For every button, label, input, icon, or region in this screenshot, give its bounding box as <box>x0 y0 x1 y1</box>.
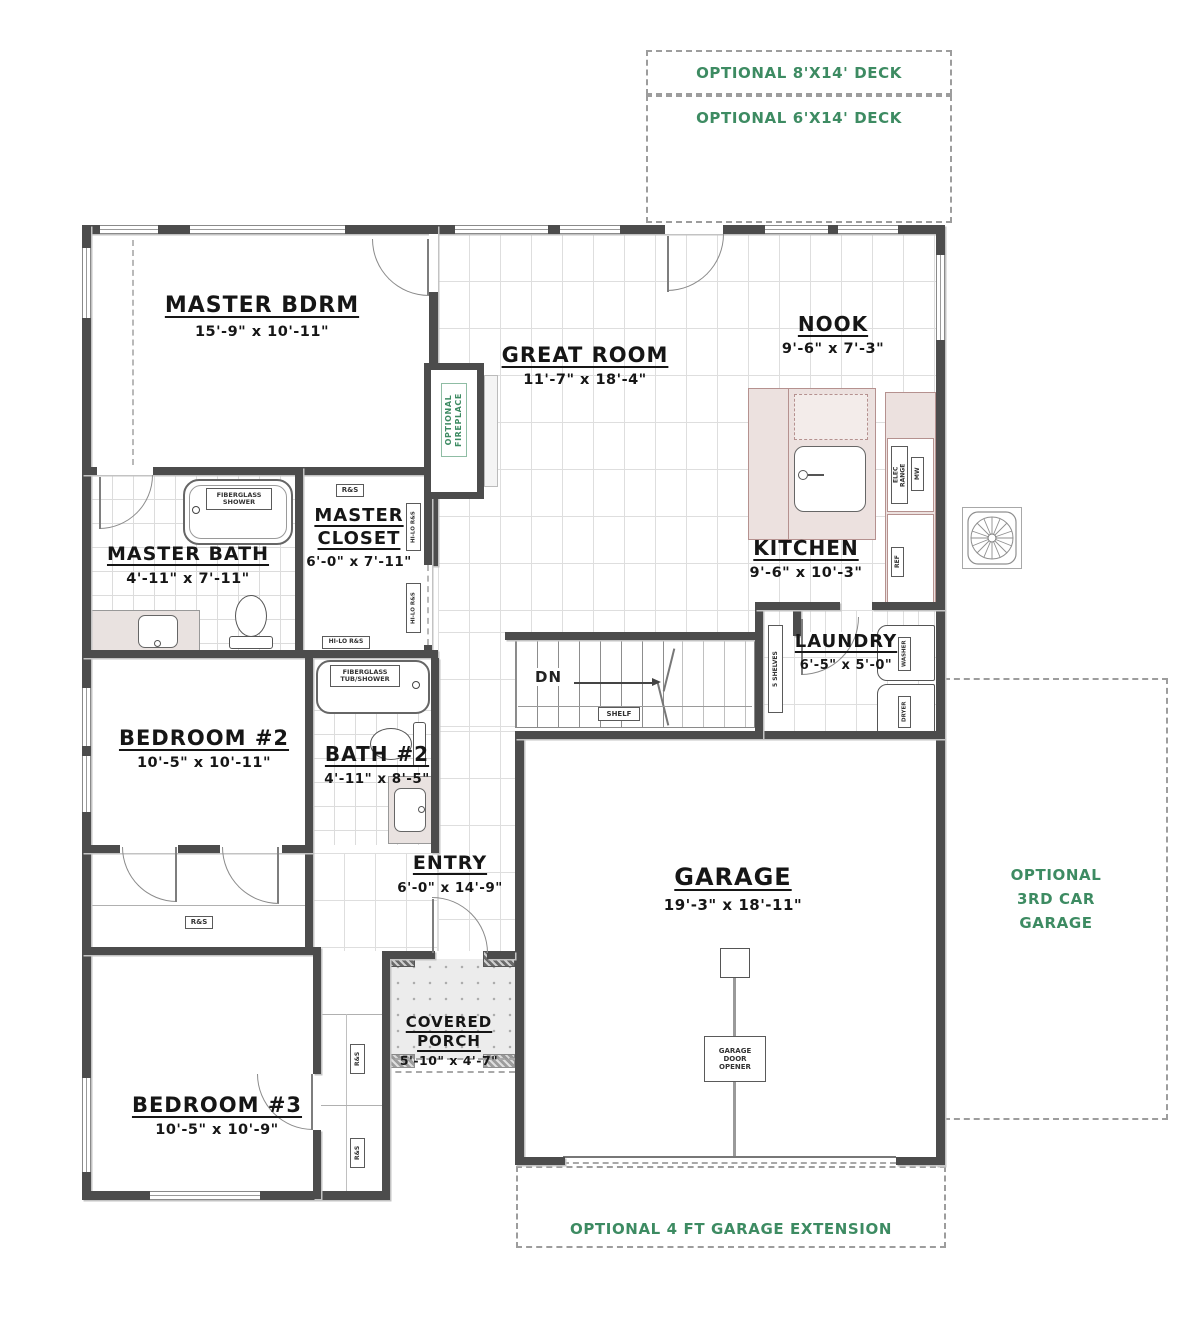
room-dims: 6'-0" x 14'-9" <box>330 880 570 896</box>
shelf-label: SHELF <box>598 707 640 721</box>
optional-deck-8x14-label: OPTIONAL 8'X14' DECK <box>696 64 902 82</box>
faucet-spout <box>808 474 824 476</box>
window <box>150 1191 260 1200</box>
stairs-direction-arrow <box>574 682 654 684</box>
window <box>190 225 345 234</box>
wall <box>82 650 438 658</box>
room-dims: 4'-11" x 7'-11" <box>68 571 308 587</box>
garage-door-opener-unit <box>720 948 750 978</box>
door-swing <box>122 847 177 902</box>
wall <box>515 731 945 739</box>
room-name: BATH #2 <box>257 742 497 767</box>
door-leaf <box>277 847 279 903</box>
microwave-label: MW <box>911 457 924 491</box>
room-name: BEDROOM #3 <box>97 1092 337 1118</box>
optional-deck-8x14-area: OPTIONAL 8'X14' DECK <box>646 50 952 95</box>
floor-plan: OPTIONAL 8'X14' DECK OPTIONAL 6'X14' DEC… <box>0 0 1200 1317</box>
door-swing <box>222 847 279 904</box>
rod-shelf-label: R&S <box>185 916 213 929</box>
wall <box>515 739 524 1165</box>
optional-third-car-garage-area: OPTIONAL 3RD CAR GARAGE <box>944 678 1168 1120</box>
garage-door-dashed <box>563 1162 896 1164</box>
room-dims: 5'-10" x 4'-7" <box>329 1053 569 1068</box>
room-label-bedroom3: BEDROOM #3 10'-5" x 10'-9" <box>97 1092 337 1138</box>
garage-door-opener-label: GARAGE DOOR OPENER <box>704 1036 766 1082</box>
wall <box>872 602 945 610</box>
door-leaf <box>432 899 434 953</box>
window <box>765 225 828 234</box>
room-dims: 15'-9" x 10'-11" <box>142 324 382 340</box>
hilo-rod-shelf-label: HI-LO R&S <box>406 583 421 633</box>
room-name: GREAT ROOM <box>465 342 705 368</box>
rod-shelf-label: R&S <box>350 1138 365 1168</box>
room-dims: 19'-3" x 18'-11" <box>613 896 853 914</box>
wall <box>505 632 763 640</box>
wall <box>382 951 390 1200</box>
optional-fireplace-label: OPTIONAL FIREPLACE <box>444 393 463 447</box>
rod-shelf-label: R&S <box>336 484 364 497</box>
room-label-entry: ENTRY 6'-0" x 14'-9" <box>330 852 570 896</box>
room-label-master-closet: MASTER CLOSET 6'-0" x 7'-11" <box>239 505 479 570</box>
room-dims: 6'-5" x 5'-0" <box>726 658 966 673</box>
room-label-garage: GARAGE 19'-3" x 18'-11" <box>613 862 853 914</box>
optional-garage-extension-area: OPTIONAL 4 FT GARAGE EXTENSION <box>516 1166 946 1248</box>
room-label-laundry: LAUNDRY 6'-5" x 5'-0" <box>726 631 966 673</box>
ceiling-break-dashed-line <box>132 240 134 465</box>
optional-deck-6x14-area: OPTIONAL 6'X14' DECK <box>646 95 952 223</box>
optional-fireplace-label-box: OPTIONAL FIREPLACE <box>441 383 467 457</box>
closet-shelf-line <box>90 905 306 906</box>
room-label-nook: NOOK 9'-6" x 7'-3" <box>713 312 953 357</box>
room-dims: 10'-5" x 10'-9" <box>97 1122 337 1138</box>
optional-garage-extension-label: OPTIONAL 4 FT GARAGE EXTENSION <box>570 1220 892 1238</box>
window <box>455 225 548 234</box>
door-leaf <box>667 236 669 292</box>
optional-deck-6x14-label: OPTIONAL 6'X14' DECK <box>696 109 902 127</box>
sink-faucet-icon <box>418 806 425 813</box>
tub-faucet-icon <box>412 681 420 689</box>
room-name: GARAGE <box>613 862 853 892</box>
door-swing <box>372 239 429 296</box>
wall <box>515 1157 565 1165</box>
elec-range-label: ELEC RANGE <box>891 446 908 504</box>
optional-third-car-garage-label: OPTIONAL 3RD CAR GARAGE <box>1011 863 1102 935</box>
door-leaf <box>427 239 429 295</box>
wall <box>313 947 321 1074</box>
door-leaf <box>175 847 177 902</box>
island-divider <box>788 389 789 539</box>
room-dims: 4'-11" x 8'-5" <box>257 771 497 787</box>
door-opening <box>429 234 438 292</box>
wall <box>936 225 945 1166</box>
room-dims: 9'-6" x 7'-3" <box>713 341 953 357</box>
window <box>82 248 91 318</box>
room-label-covered-porch: COVERED PORCH 5'-10" x 4'-7" <box>329 1013 569 1068</box>
room-label-master-bdrm: MASTER BDRM 15'-9" x 10'-11" <box>142 292 382 340</box>
faucet-icon <box>798 470 808 480</box>
room-name: LAUNDRY <box>726 631 966 654</box>
room-label-bath2: BATH #2 4'-11" x 8'-5" <box>257 742 497 787</box>
arrow-head-icon <box>652 678 661 686</box>
room-dims: 11'-7" x 18'-4" <box>465 372 705 388</box>
ac-fan-icon <box>963 508 1021 568</box>
room-name: KITCHEN <box>686 536 926 561</box>
window <box>82 1078 91 1172</box>
wall <box>487 951 515 959</box>
master-toilet-tank <box>229 636 273 649</box>
room-name: MASTER CLOSET <box>239 505 479 550</box>
wall <box>313 1130 321 1199</box>
dryer-label: DRYER <box>898 696 911 728</box>
room-name: ENTRY <box>330 852 570 876</box>
porch-edge-dashed <box>385 1071 515 1073</box>
hilo-rod-shelf-label: HI-LO R&S <box>322 636 370 649</box>
room-label-kitchen: KITCHEN 9'-6" x 10'-3" <box>686 536 926 581</box>
window <box>838 225 898 234</box>
room-dims: 6'-0" x 7'-11" <box>239 554 479 570</box>
window <box>100 225 158 234</box>
wall <box>82 947 321 955</box>
fireplace-hearth <box>484 375 498 487</box>
room-dims: 9'-6" x 10'-3" <box>686 565 926 581</box>
room-label-great-room: GREAT ROOM 11'-7" x 18'-4" <box>465 342 705 388</box>
door-leaf <box>99 477 101 529</box>
window <box>560 225 620 234</box>
master-toilet-bowl <box>235 595 267 637</box>
sink-faucet-icon <box>154 640 161 647</box>
door-opening <box>97 467 153 475</box>
door-opening <box>665 225 723 234</box>
stairs-dn-label: DN <box>533 668 564 686</box>
ac-fan-unit <box>962 507 1022 569</box>
room-name: MASTER BDRM <box>142 292 382 320</box>
room-name: COVERED PORCH <box>329 1013 569 1051</box>
fiberglass-tub-shower-label: FIBERGLASS TUB/SHOWER <box>330 665 400 687</box>
dishwasher <box>794 394 868 440</box>
wall <box>755 602 840 610</box>
wall <box>305 658 313 947</box>
shower-faucet-icon <box>192 506 200 514</box>
wall <box>390 951 435 959</box>
wall <box>896 1157 945 1165</box>
closet-threshold-dashed <box>427 565 429 645</box>
room-name: NOOK <box>713 312 953 337</box>
hall-tile-floor <box>438 632 515 731</box>
garage-door <box>563 1156 896 1158</box>
